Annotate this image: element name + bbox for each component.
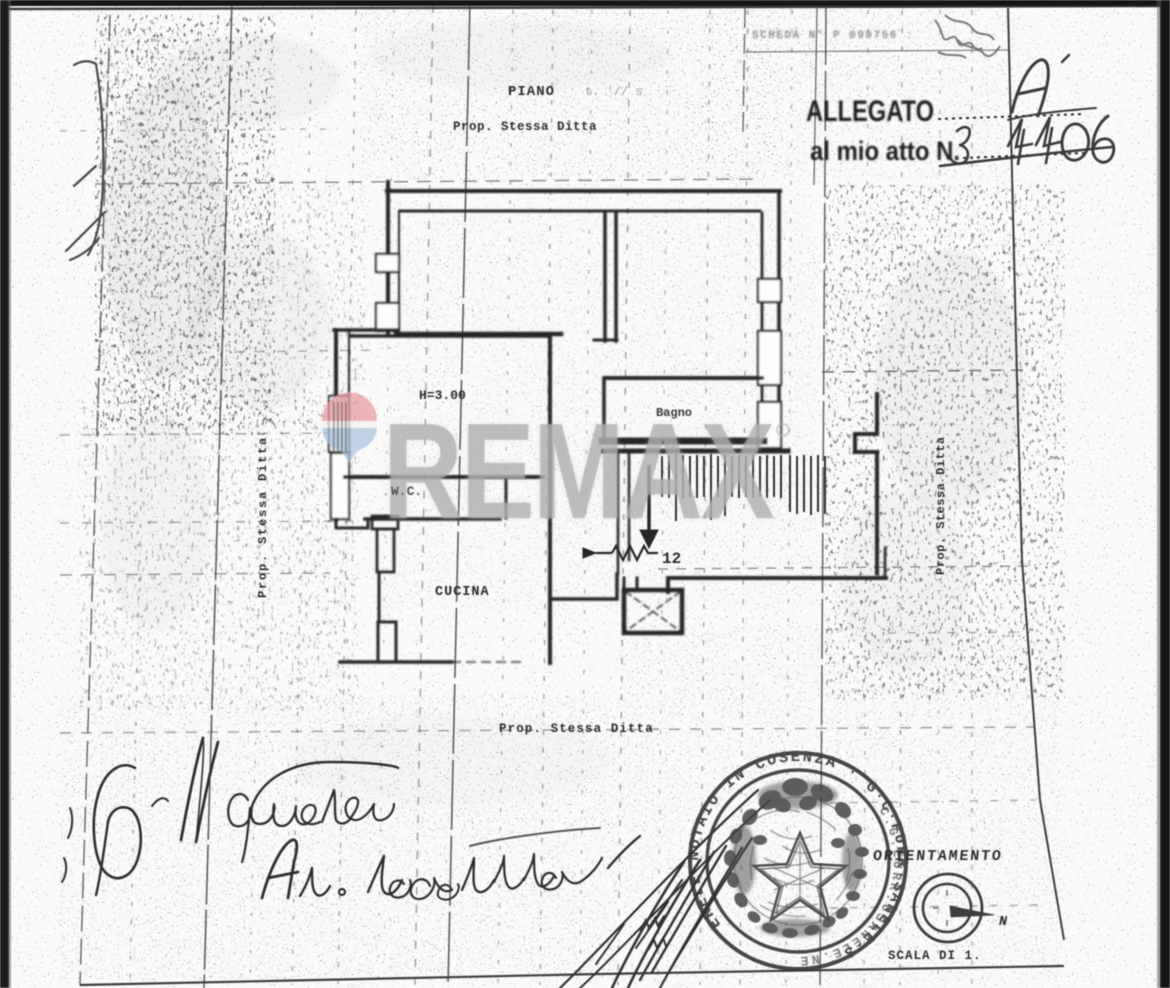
svg-text:REMAX: REMAX [383, 395, 774, 547]
svg-text:SCALA DI 1.: SCALA DI 1. [888, 949, 982, 963]
svg-text:N: N [999, 915, 1008, 930]
svg-text:Prop. Stessa Ditta: Prop. Stessa Ditta [453, 120, 597, 134]
svg-text:t. '// s: t. '// s [585, 85, 643, 99]
svg-text:12: 12 [662, 550, 681, 568]
svg-text:PIANO: PIANO [508, 84, 555, 100]
svg-text:CUCINA: CUCINA [435, 585, 490, 600]
svg-text:SCHEDA N° P 099756 :: SCHEDA N° P 099756 : [752, 30, 914, 42]
svg-text:al mio atto N.: al mio atto N. [810, 136, 960, 166]
svg-text:Prop. Stessa Ditta: Prop. Stessa Ditta [934, 436, 948, 575]
svg-text:Prop. Stessa Ditta: Prop. Stessa Ditta [256, 436, 270, 598]
svg-text:Prop. Stessa Ditta: Prop. Stessa Ditta [499, 722, 654, 736]
svg-text:W.C.: W.C. [391, 484, 422, 499]
svg-text:ALLEGATO: ALLEGATO [806, 95, 934, 128]
svg-text:ORIENTAMENTO: ORIENTAMENTO [872, 847, 1003, 865]
